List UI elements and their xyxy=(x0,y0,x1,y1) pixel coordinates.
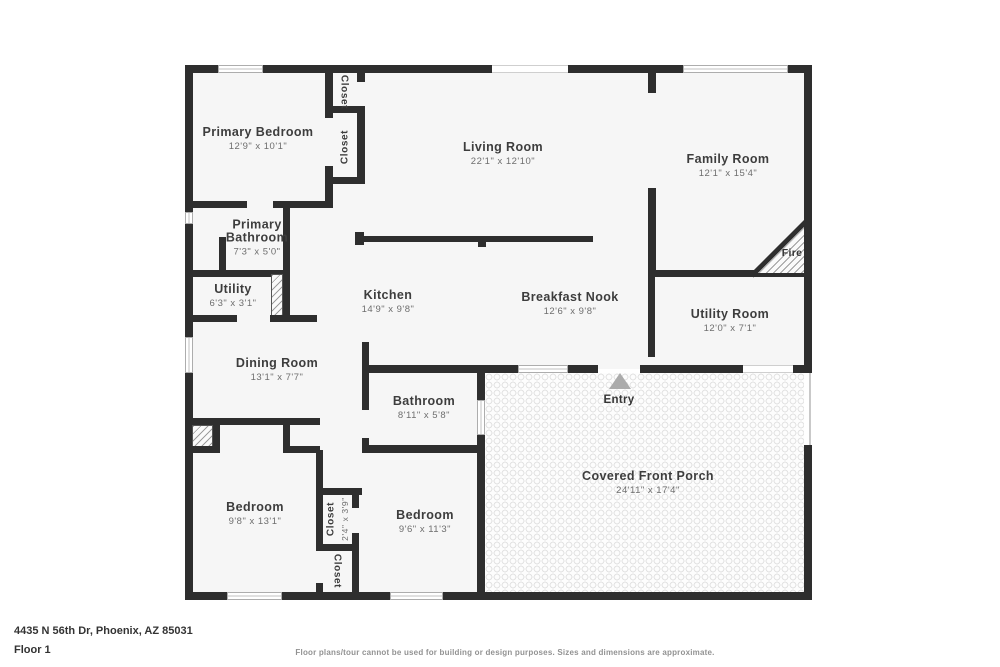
room-label-kitchen: Kitchen 14'9" x 9'8" xyxy=(362,289,415,315)
kitchen-counter xyxy=(355,236,593,242)
room-name: Dining Room xyxy=(236,357,318,370)
window xyxy=(477,400,485,435)
window xyxy=(218,65,263,73)
window-opening xyxy=(492,65,568,73)
wall-segment xyxy=(263,65,492,73)
room-dims: 24'11" x 17'4" xyxy=(582,485,714,496)
closet-dims: 2'4" x 3'9" xyxy=(340,497,350,541)
wall-segment xyxy=(270,315,317,322)
room-label-utility: Utility 6'3" x 3'1" xyxy=(209,283,256,309)
wall-segment xyxy=(185,65,193,212)
kitchen-counter-cap xyxy=(355,232,364,245)
room-name: Utility xyxy=(209,283,256,296)
wall-segment xyxy=(316,583,323,600)
kitchen-counter-tick xyxy=(478,241,486,247)
closet-label: Closet xyxy=(339,75,350,109)
room-dims: 7'3" x 5'0" xyxy=(211,247,303,258)
room-label-primary-bathroom: Primary Bathroom 7'3" x 5'0" xyxy=(211,218,303,257)
room-name: Bedroom xyxy=(226,501,284,514)
entry-label: Entry xyxy=(604,394,635,406)
window-opening xyxy=(743,365,793,373)
fireplace-label: Fire xyxy=(782,247,802,259)
wall-segment xyxy=(362,342,369,410)
room-label-bedroom-1: Bedroom 9'8" x 13'1" xyxy=(226,501,284,527)
water-heater xyxy=(271,274,283,317)
window xyxy=(227,592,282,600)
disclaimer-text: Floor plans/tour cannot be used for buil… xyxy=(295,648,714,657)
room-dims: 13'1" x 7'7" xyxy=(236,372,318,383)
room-label-living-room: Living Room 22'1" x 12'10" xyxy=(463,141,543,167)
room-name: Bathroom xyxy=(393,395,455,408)
closet-label: Closet xyxy=(340,130,351,164)
room-name: Family Room xyxy=(687,153,770,166)
window xyxy=(185,212,193,224)
wall-segment xyxy=(648,277,655,357)
room-dims: 12'9" x 10'1" xyxy=(203,141,314,152)
wall-segment xyxy=(362,445,485,453)
wall-segment xyxy=(282,592,390,600)
wall-segment xyxy=(648,188,656,277)
wall-segment xyxy=(362,365,477,373)
wall-segment xyxy=(325,166,333,208)
wall-segment xyxy=(316,450,323,551)
closet-label: Closet xyxy=(332,554,343,588)
wall-segment xyxy=(352,488,359,508)
room-dims: 12'6" x 9'8" xyxy=(521,306,618,317)
wall-segment xyxy=(273,201,333,208)
wall-segment xyxy=(357,113,365,184)
window xyxy=(518,365,568,373)
room-dims: 14'9" x 9'8" xyxy=(362,304,415,315)
wall-segment xyxy=(352,551,359,600)
wall-segment xyxy=(185,315,237,322)
closet-label: Closet xyxy=(326,502,337,536)
entry-arrow-icon xyxy=(609,373,631,389)
floorplan-page: Primary Bedroom 12'9" x 10'1" Living Roo… xyxy=(0,0,1000,667)
room-dims: 6'3" x 3'1" xyxy=(209,298,256,309)
wall-segment xyxy=(568,65,683,73)
floor-number-text: Floor 1 xyxy=(14,644,51,656)
wall-segment xyxy=(185,592,227,600)
wall-segment xyxy=(185,373,193,600)
wall-segment xyxy=(316,544,359,551)
room-dims: 9'8" x 13'1" xyxy=(226,516,284,527)
window xyxy=(390,592,443,600)
room-label-covered-front-porch: Covered Front Porch 24'11" x 17'4" xyxy=(582,470,714,496)
wall-segment xyxy=(185,446,220,453)
room-name: Kitchen xyxy=(362,289,415,302)
room-dims: 12'1" x 15'4" xyxy=(687,168,770,179)
wall-segment xyxy=(185,201,247,208)
window xyxy=(185,337,193,373)
wall-segment xyxy=(325,113,333,118)
room-label-bedroom-2: Bedroom 9'6" x 11'3" xyxy=(396,509,454,535)
room-label-primary-bedroom: Primary Bedroom 12'9" x 10'1" xyxy=(203,126,314,152)
room-label-utility-room: Utility Room 12'0" x 7'1" xyxy=(691,308,769,334)
wall-segment xyxy=(477,592,812,600)
room-label-breakfast-nook: Breakfast Nook 12'6" x 9'8" xyxy=(521,291,618,317)
room-label-dining-room: Dining Room 13'1" x 7'7" xyxy=(236,357,318,383)
room-dims: 12'0" x 7'1" xyxy=(691,323,769,334)
room-dims: 22'1" x 12'10" xyxy=(463,156,543,167)
room-label-family-room: Family Room 12'1" x 15'4" xyxy=(687,153,770,179)
wall-segment xyxy=(485,365,518,373)
room-name: Breakfast Nook xyxy=(521,291,618,304)
bedroom-fixture xyxy=(192,425,213,447)
wall-segment xyxy=(477,435,485,600)
wall-segment xyxy=(283,446,320,453)
room-name: Primary Bedroom xyxy=(203,126,314,139)
porch-edge-line xyxy=(809,373,811,445)
room-name: Covered Front Porch xyxy=(582,470,714,483)
wall-segment xyxy=(477,365,485,400)
wall-segment xyxy=(640,365,743,373)
address-text: 4435 N 56th Dr, Phoenix, AZ 85031 xyxy=(14,625,193,637)
wall-segment xyxy=(357,73,365,82)
room-name: Bedroom xyxy=(396,509,454,522)
room-dims: 9'6" x 11'3" xyxy=(396,524,454,535)
room-name: Primary Bathroom xyxy=(211,218,303,244)
wall-segment xyxy=(357,106,365,113)
wall-segment xyxy=(185,418,320,425)
window xyxy=(683,65,788,73)
room-dims: 8'11" x 5'8" xyxy=(393,410,455,421)
room-label-bathroom: Bathroom 8'11" x 5'8" xyxy=(393,395,455,421)
room-name: Living Room xyxy=(463,141,543,154)
wall-segment xyxy=(793,365,812,373)
wall-segment xyxy=(648,73,656,93)
room-name: Utility Room xyxy=(691,308,769,321)
wall-segment xyxy=(804,445,812,600)
wall-segment xyxy=(568,365,598,373)
